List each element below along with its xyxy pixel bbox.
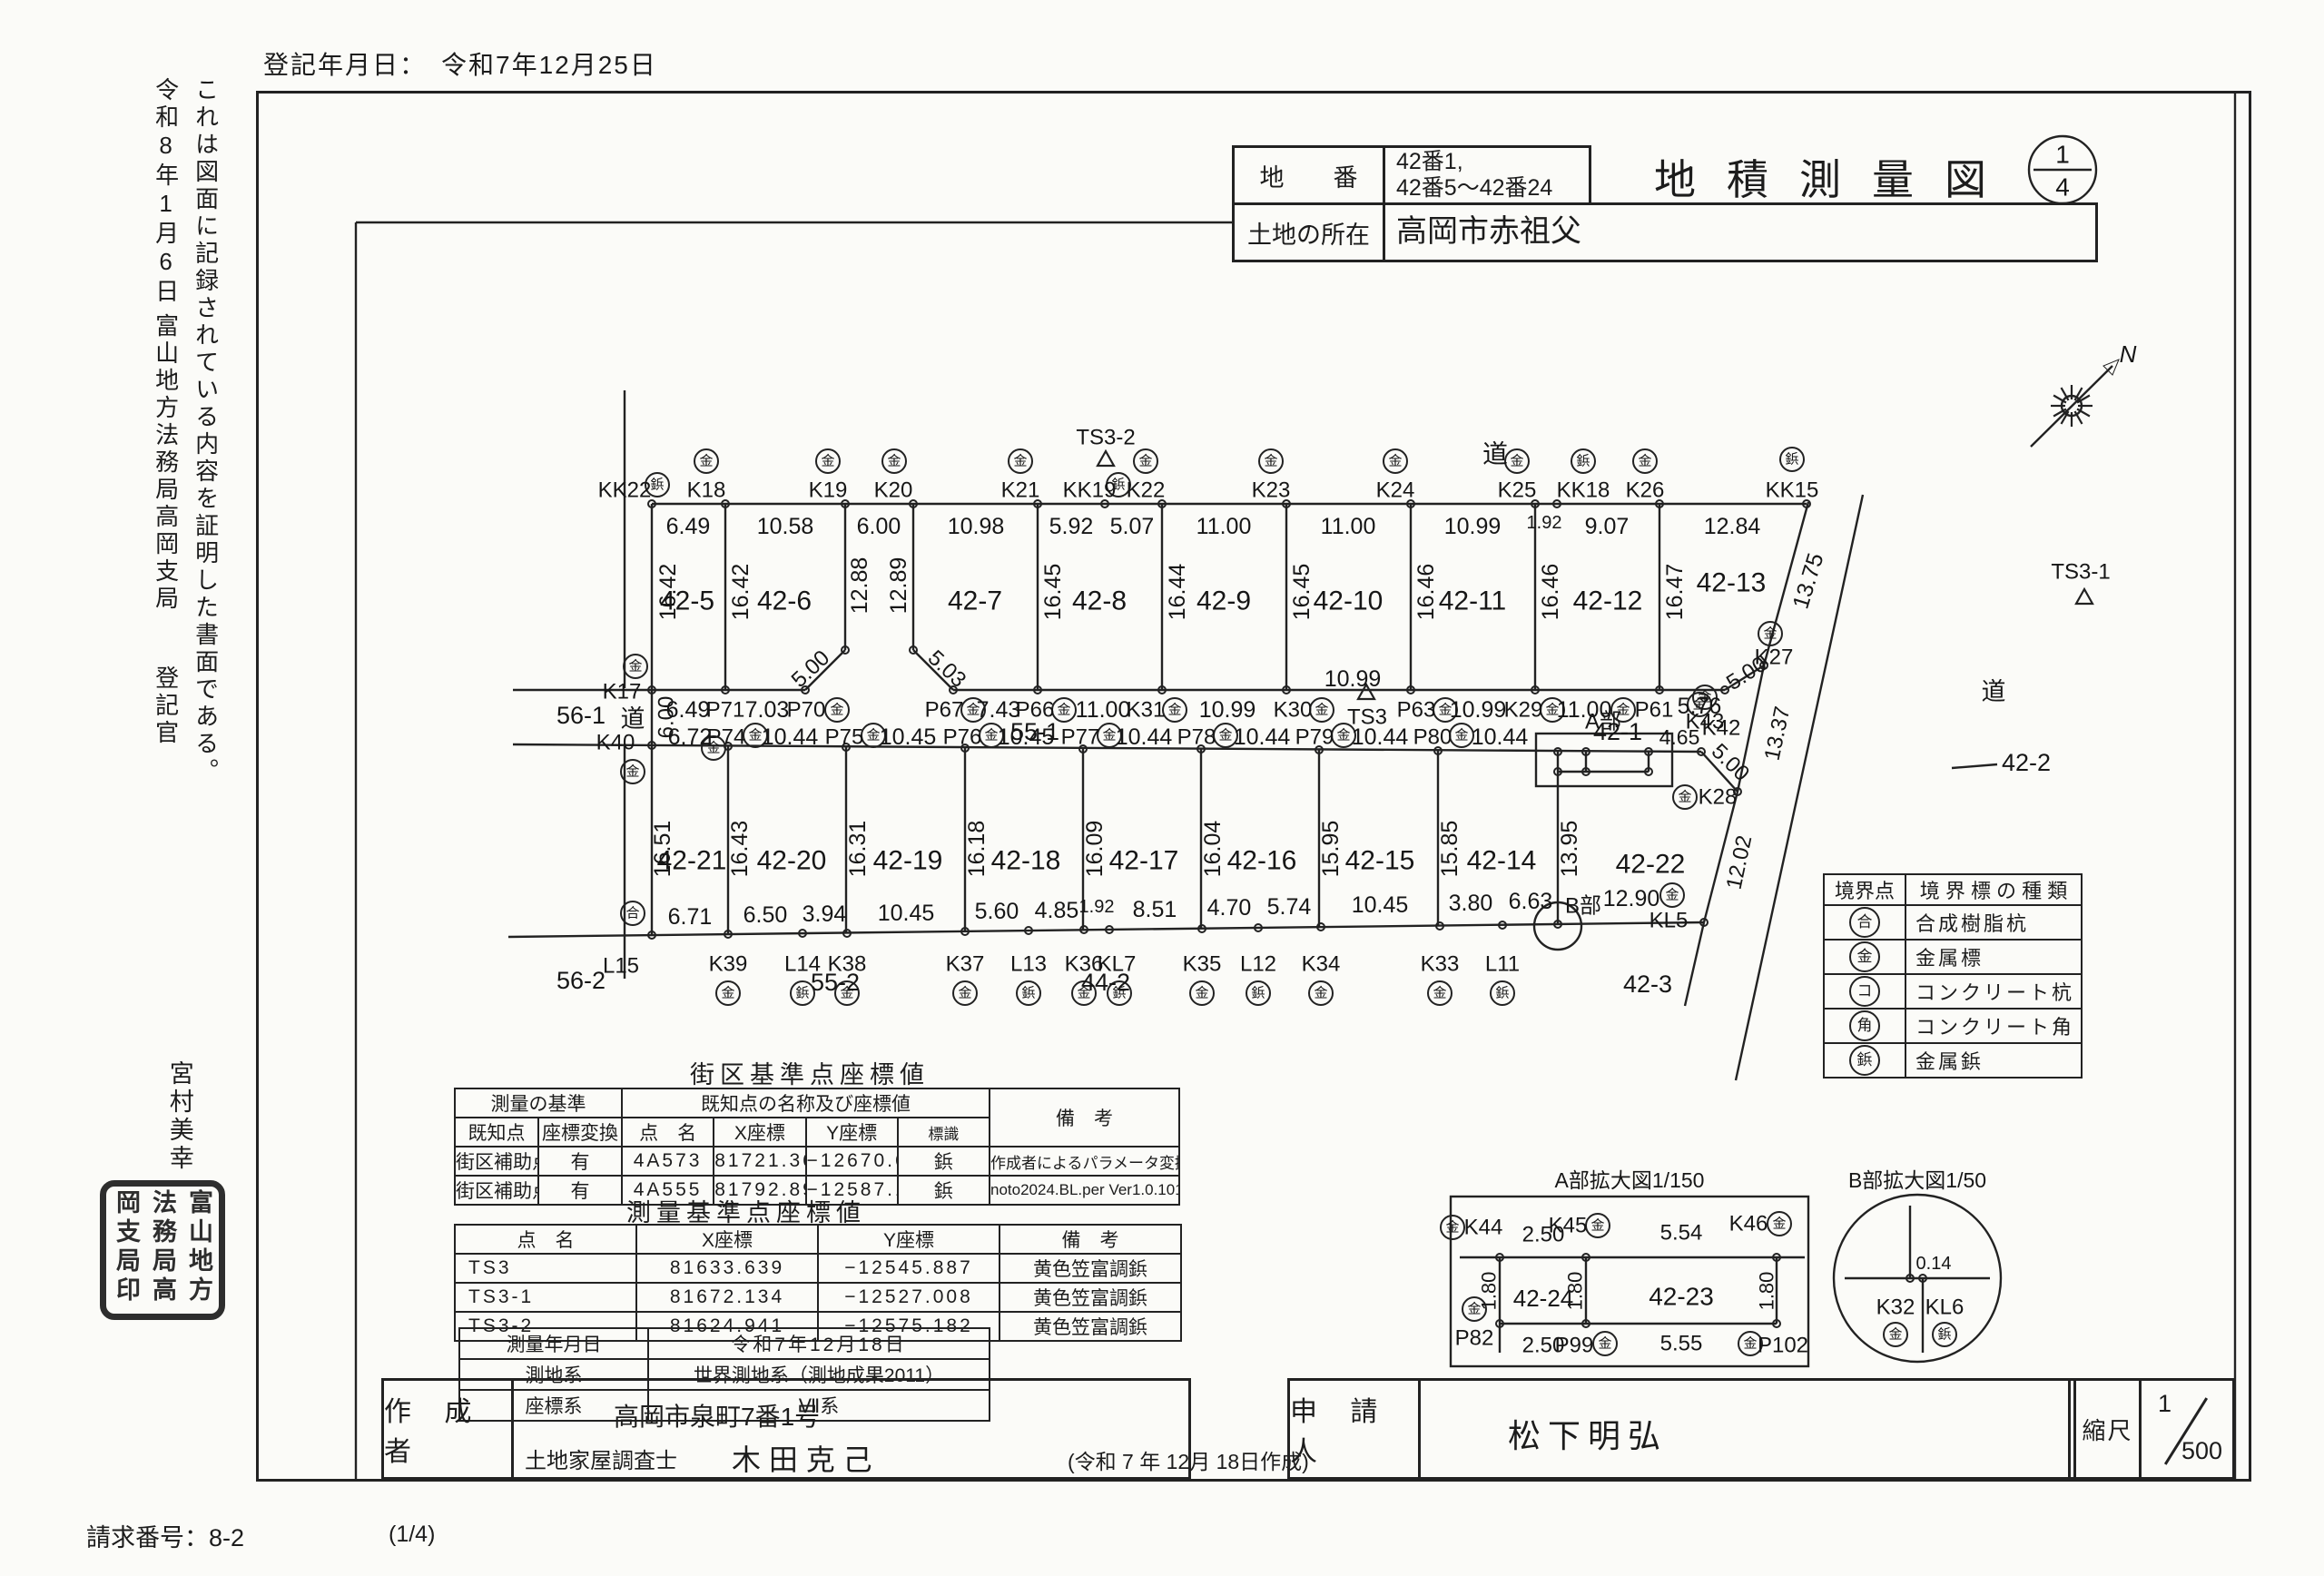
legend-label: コンクリート杭 [1905, 974, 2082, 1009]
footer-page-note: (1/4) [389, 1522, 435, 1548]
applicant-block: 申 請 人 松下明弘 縮尺 1 500 [1287, 1378, 2235, 1480]
cell: 街区補助点 [455, 1147, 538, 1176]
block-reference-table-title: 街区基準点座標値 [690, 1055, 930, 1090]
cell: 4A573 [622, 1147, 714, 1176]
official-seal: 富山地方法務局高岡支局印 [100, 1180, 225, 1320]
col-header: 点 名 [455, 1225, 636, 1254]
request-number: 請求番号：8-2 [86, 1518, 244, 1553]
maker-block: 作 成 者 高岡市泉町7番1号 土地家屋調査士 木 田 克 己 (令和 7 年 … [381, 1378, 1191, 1480]
cell: 有 [538, 1147, 622, 1176]
scale-value: 1 500 [2142, 1381, 2232, 1477]
survey-reference-table: 点 名 X座標 Y座標 備 考 TS3 81633.639 −12545.887… [454, 1224, 1182, 1342]
registration-date: 登記年月日： 令和7年12月25日 [263, 45, 657, 82]
cell: 81672.134 [636, 1283, 818, 1312]
legend-symbol-plastic-stake-icon: 合 [1849, 907, 1880, 938]
col-header: 標識 [898, 1118, 990, 1147]
land-location-row: 土地の所在 高岡市赤祖父 [1232, 202, 2098, 262]
col-header: 測量の基準 [455, 1088, 622, 1118]
cell: 81721.366 [714, 1147, 805, 1176]
cell: 鋲 [898, 1147, 990, 1176]
legal-affairs-office: 富山地方法務局高岡支局 [153, 313, 179, 604]
maker-address: 高岡市泉町7番1号 [614, 1397, 820, 1433]
cell: 有 [538, 1176, 622, 1205]
legend-header-type: 境 界 標 の 種 類 [1905, 874, 2082, 905]
cell: 黄色笠富調鋲 [1000, 1254, 1181, 1283]
maker-label: 作 成 者 [384, 1381, 514, 1477]
col-header: X座標 [636, 1225, 818, 1254]
document-title: 地積測量図 [1654, 147, 2017, 207]
legend-symbol-concrete-stake-icon: コ [1849, 976, 1880, 1007]
scale-label: 縮尺 [2076, 1381, 2142, 1477]
col-header: 既知点 [455, 1118, 538, 1147]
cell: noto2024.BL.per Ver1.0.1011 [990, 1176, 1179, 1205]
legend-label: 合成樹脂杭 [1905, 905, 2082, 940]
cell: −12670.684 [806, 1147, 898, 1176]
col-header: 備 考 [1000, 1225, 1181, 1254]
lot-number-row: 地 番 42番1, 42番5～42番24 [1232, 145, 1591, 205]
maker-role: 土地家屋調査士 [525, 1443, 677, 1474]
scale-numerator: 1 [2158, 1390, 2171, 1418]
boundary-marker-legend: 境界点 境 界 標 の 種 類 合合成樹脂杭 金金属標 ココンクリート杭 角コン… [1823, 873, 2083, 1079]
col-header: X座標 [714, 1118, 805, 1147]
cell: TS3-1 [455, 1283, 636, 1312]
registrar-title: 登記官 [153, 665, 179, 756]
block-reference-table: 測量の基準 既知点の名称及び座標値 備 考 既知点 座標変換 点 名 X座標 Y… [454, 1088, 1180, 1206]
registrar-name: 宮村美幸 [165, 1060, 192, 1178]
legend-label: 金属鋲 [1905, 1043, 2082, 1078]
cell: TS3 [455, 1254, 636, 1283]
lot-number-value: 42番1, 42番5～42番24 [1385, 148, 1589, 202]
certification-text: これは図面に記録されている内容を証明した書面である。 [192, 77, 219, 586]
scanned-survey-document: { "page": { "header_date": "登記年月日： 令和7年1… [0, 0, 2324, 1576]
legend-symbol-metal-pin-icon: 鋲 [1849, 1045, 1880, 1076]
legend-symbol-metal-plate-icon: 金 [1849, 941, 1880, 972]
cell: −12545.887 [818, 1254, 1000, 1283]
legend-header-point: 境界点 [1824, 874, 1905, 905]
cell: 鋲 [898, 1176, 990, 1205]
cell: 黄色笠富調鋲 [1000, 1283, 1181, 1312]
col-header: Y座標 [818, 1225, 1000, 1254]
land-location-value: 高岡市赤祖父 [1385, 205, 2095, 260]
legend-label: コンクリート角 [1905, 1009, 2082, 1043]
cell: 81633.639 [636, 1254, 818, 1283]
issue-date: 令和8年1月6日 [153, 77, 179, 295]
cell: 街区補助点 [455, 1176, 538, 1205]
legend-label: 金属標 [1905, 940, 2082, 974]
scale-denominator: 500 [2181, 1437, 2222, 1465]
col-header: 座標変換 [538, 1118, 622, 1147]
col-header: Y座標 [806, 1118, 898, 1147]
applicant-name: 松下明弘 [1508, 1410, 1668, 1457]
col-header: 備 考 [990, 1088, 1179, 1147]
maker-name: 木 田 克 己 [732, 1437, 872, 1479]
table-row: TS3-1 81672.134 −12527.008 黄色笠富調鋲 [455, 1283, 1181, 1312]
cell: 測量年月日 [459, 1328, 648, 1359]
applicant-label: 申 請 人 [1290, 1381, 1421, 1477]
cell: −12527.008 [818, 1283, 1000, 1312]
lot-number-label: 地 番 [1235, 148, 1385, 202]
cell: 令和7年12月18日 [648, 1328, 990, 1359]
cell: 黄色笠富調鋲 [1000, 1312, 1181, 1341]
land-location-label: 土地の所在 [1235, 205, 1385, 260]
col-header: 点 名 [622, 1118, 714, 1147]
table-row: 測量年月日 令和7年12月18日 [459, 1328, 990, 1359]
maker-made-date: (令和 7 年 12月 18日作成) [1068, 1444, 1309, 1475]
table-row: 街区補助点 有 4A573 81721.366 −12670.684 鋲 作成者… [455, 1147, 1179, 1176]
col-header: 既知点の名称及び座標値 [622, 1088, 990, 1118]
legend-symbol-concrete-corner-icon: 角 [1849, 1010, 1880, 1041]
cell: 作成者によるパラメータ変換 [990, 1147, 1179, 1176]
table-row: TS3 81633.639 −12545.887 黄色笠富調鋲 [455, 1254, 1181, 1283]
